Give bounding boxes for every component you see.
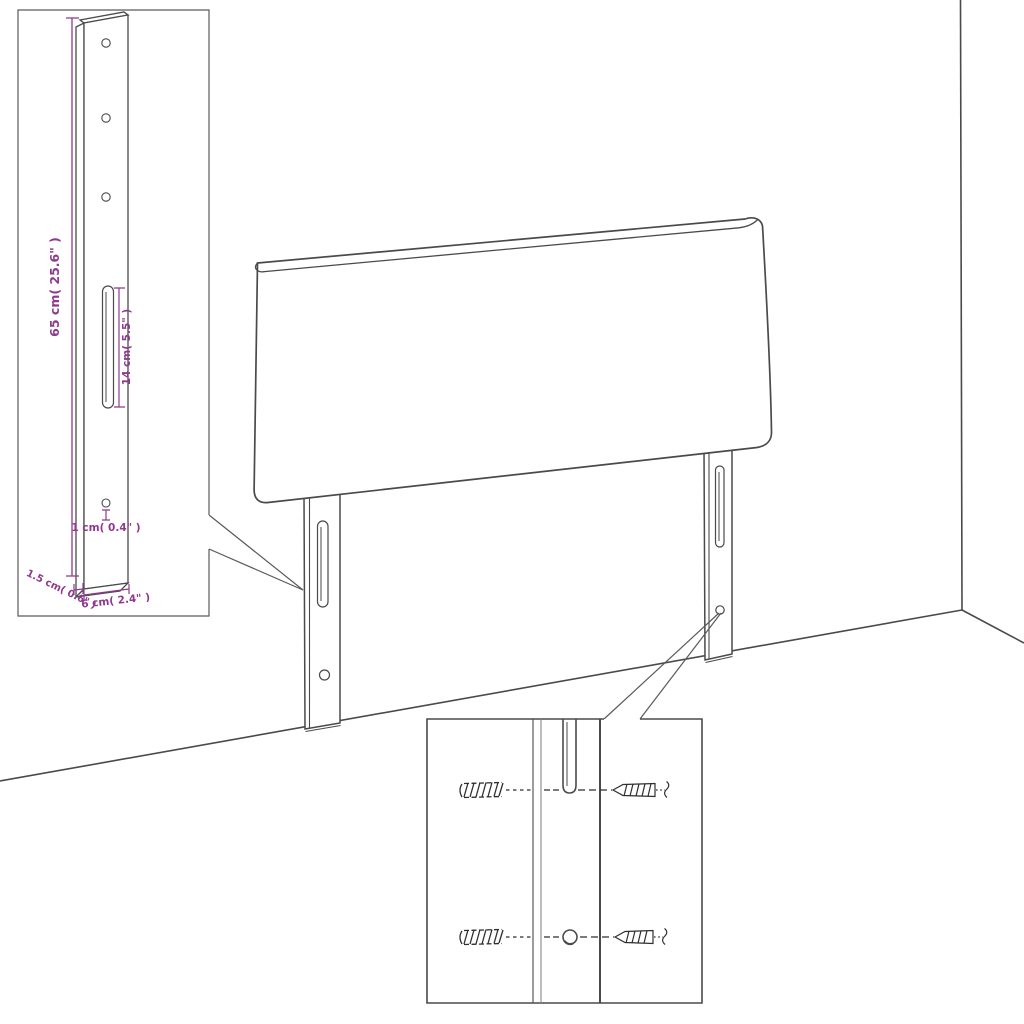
right-leg-slot bbox=[716, 466, 725, 547]
leg-detail-inset: 65 cm( 25.6" ) 14 cm( 5.5" ) 1 cm( 0.4" … bbox=[18, 10, 209, 616]
bracket-hole-middle bbox=[102, 114, 110, 122]
bracket-slot bbox=[103, 286, 114, 408]
mounting-detail-inset bbox=[427, 719, 702, 1003]
bracket-hole-lower bbox=[102, 193, 110, 201]
dimension-label: 1 cm( 0.4" ) bbox=[71, 522, 140, 534]
bracket-side-face bbox=[76, 23, 84, 597]
left-leg-hole bbox=[320, 670, 330, 680]
callout-line bbox=[640, 613, 721, 719]
callout-line bbox=[209, 515, 303, 590]
right-leg-hole bbox=[716, 606, 724, 614]
diagram-canvas: 65 cm( 25.6" ) 14 cm( 5.5" ) 1 cm( 0.4" … bbox=[0, 0, 1024, 1024]
leg-bracket-drawing bbox=[76, 12, 128, 597]
headboard-panel bbox=[254, 218, 771, 503]
floor-line-right bbox=[962, 610, 1024, 643]
left-leg bbox=[304, 490, 341, 732]
headboard-panel-face bbox=[254, 218, 771, 503]
bracket-small-hole bbox=[102, 499, 110, 507]
callout-wedge-left bbox=[209, 515, 303, 590]
callout-line bbox=[209, 549, 303, 590]
bracket-hole-top bbox=[102, 39, 110, 47]
wall-corner-line bbox=[961, 0, 963, 610]
headboard-diagram: 65 cm( 25.6" ) 14 cm( 5.5" ) 1 cm( 0.4" … bbox=[0, 0, 1024, 1024]
inset-border bbox=[427, 719, 702, 1003]
callout-wedge-right bbox=[604, 613, 721, 719]
dimension-label: 65 cm( 25.6" ) bbox=[47, 237, 62, 337]
left-leg-slot bbox=[318, 521, 329, 607]
callout-line bbox=[604, 613, 719, 719]
dimension-label: 14 cm( 5.5" ) bbox=[121, 309, 133, 385]
